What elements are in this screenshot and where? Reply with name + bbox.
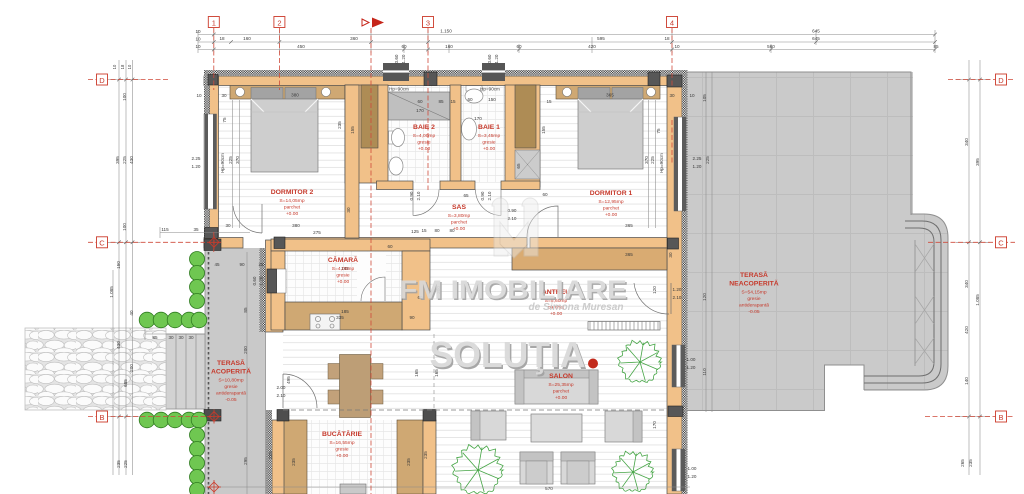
- svg-text:150: 150: [116, 261, 121, 269]
- svg-text:100: 100: [122, 93, 127, 101]
- svg-text:365: 365: [606, 93, 614, 98]
- svg-text:370: 370: [235, 156, 240, 164]
- svg-text:155: 155: [541, 126, 546, 134]
- svg-text:560: 560: [767, 44, 775, 49]
- svg-text:2: 2: [277, 18, 281, 27]
- svg-text:65: 65: [463, 193, 469, 198]
- svg-text:1.20: 1.20: [494, 54, 499, 63]
- svg-text:160: 160: [445, 44, 453, 49]
- svg-text:S=25,35mp: S=25,35mp: [548, 382, 573, 388]
- svg-text:160: 160: [243, 36, 251, 41]
- svg-text:30: 30: [225, 223, 231, 228]
- svg-text:365: 365: [625, 252, 633, 257]
- svg-text:340: 340: [964, 138, 969, 146]
- svg-text:120: 120: [652, 286, 657, 294]
- svg-text:0.60: 0.60: [252, 276, 257, 285]
- svg-text:+0.00: +0.00: [418, 146, 431, 152]
- svg-text:10: 10: [127, 64, 132, 69]
- svg-text:0.60: 0.60: [394, 54, 399, 63]
- svg-text:40: 40: [129, 310, 134, 316]
- svg-text:75: 75: [222, 117, 227, 123]
- svg-text:S=12,95mp: S=12,95mp: [598, 199, 623, 205]
- svg-text:380: 380: [291, 93, 299, 98]
- svg-text:60: 60: [542, 192, 548, 197]
- svg-text:365: 365: [625, 223, 633, 228]
- svg-text:335: 335: [336, 315, 344, 320]
- svg-text:C: C: [99, 239, 105, 248]
- svg-text:120: 120: [702, 293, 707, 301]
- svg-text:2.10: 2.10: [416, 191, 421, 200]
- svg-text:420: 420: [588, 44, 596, 49]
- svg-text:200: 200: [129, 364, 134, 372]
- svg-text:360: 360: [350, 36, 358, 41]
- svg-text:430: 430: [129, 156, 134, 164]
- svg-text:S=16,55mp: S=16,55mp: [329, 440, 354, 446]
- svg-text:0.90: 0.90: [409, 191, 414, 200]
- svg-text:1.00: 1.00: [688, 466, 697, 471]
- svg-text:110: 110: [702, 368, 707, 376]
- svg-text:gresie: gresie: [417, 140, 431, 146]
- svg-text:225: 225: [123, 460, 128, 468]
- svg-text:D: D: [99, 76, 105, 85]
- svg-text:10: 10: [195, 29, 201, 34]
- svg-text:170: 170: [474, 116, 482, 121]
- svg-text:2.25: 2.25: [192, 156, 201, 161]
- svg-text:90: 90: [409, 315, 415, 320]
- svg-text:parchet: parchet: [284, 205, 301, 211]
- svg-text:NEACOPERITĂ: NEACOPERITĂ: [729, 279, 779, 288]
- svg-text:C: C: [998, 239, 1004, 248]
- svg-text:30: 30: [668, 252, 673, 258]
- svg-text:60: 60: [417, 99, 423, 104]
- svg-text:100: 100: [122, 223, 127, 231]
- svg-text:170: 170: [652, 421, 657, 429]
- svg-text:185: 185: [341, 309, 349, 314]
- svg-text:gresie: gresie: [747, 296, 761, 302]
- svg-text:S=4,00mp: S=4,00mp: [413, 133, 436, 139]
- svg-text:1.150: 1.150: [440, 29, 452, 34]
- svg-text:parchet: parchet: [603, 206, 620, 212]
- svg-text:0.90: 0.90: [480, 191, 485, 200]
- svg-text:1.20: 1.20: [192, 164, 201, 169]
- svg-text:gresie: gresie: [482, 140, 496, 146]
- svg-text:1.20: 1.20: [687, 365, 696, 370]
- svg-text:80: 80: [434, 228, 440, 233]
- svg-text:10: 10: [112, 64, 117, 69]
- svg-text:150: 150: [488, 97, 496, 102]
- svg-text:0.60: 0.60: [487, 54, 492, 63]
- svg-text:+0.00: +0.00: [605, 212, 618, 218]
- svg-text:BUCĂTĂRIE: BUCĂTĂRIE: [322, 429, 362, 438]
- svg-text:395: 395: [975, 158, 980, 166]
- svg-text:ACOPERITĂ: ACOPERITĂ: [211, 367, 251, 376]
- svg-text:30: 30: [168, 335, 174, 340]
- svg-text:30: 30: [221, 93, 227, 98]
- svg-text:gresie: gresie: [335, 447, 349, 453]
- svg-text:B: B: [998, 413, 1003, 422]
- svg-text:1.085: 1.085: [975, 294, 980, 306]
- svg-text:90: 90: [239, 262, 245, 267]
- svg-text:85: 85: [152, 335, 158, 340]
- svg-text:380: 380: [292, 223, 300, 228]
- svg-text:2.00: 2.00: [277, 385, 286, 390]
- svg-text:340: 340: [964, 280, 969, 288]
- svg-text:225: 225: [228, 156, 233, 164]
- svg-text:595: 595: [597, 36, 605, 41]
- svg-text:10: 10: [196, 93, 202, 98]
- svg-text:2.10: 2.10: [277, 393, 286, 398]
- svg-text:+0.00: +0.00: [555, 395, 568, 401]
- svg-text:570: 570: [545, 486, 553, 491]
- svg-text:DORMITOR 2: DORMITOR 2: [271, 189, 314, 196]
- svg-text:+0.00: +0.00: [483, 146, 496, 152]
- svg-text:60: 60: [467, 97, 473, 102]
- svg-text:1.20: 1.20: [688, 474, 697, 479]
- svg-text:Hp=90cm: Hp=90cm: [389, 87, 409, 92]
- svg-text:1: 1: [212, 18, 216, 27]
- svg-text:60: 60: [387, 244, 393, 249]
- svg-text:235: 235: [406, 458, 411, 466]
- svg-text:370: 370: [644, 156, 649, 164]
- svg-text:2.10: 2.10: [673, 295, 682, 300]
- svg-text:parchet: parchet: [451, 220, 468, 226]
- svg-text:BAIE 1: BAIE 1: [478, 124, 500, 131]
- svg-text:Hp=90cm: Hp=90cm: [659, 153, 664, 173]
- svg-text:15: 15: [421, 228, 427, 233]
- svg-text:0.90: 0.90: [508, 208, 517, 213]
- svg-text:495: 495: [286, 376, 291, 384]
- svg-text:1.20: 1.20: [693, 164, 702, 169]
- svg-text:30: 30: [178, 335, 184, 340]
- svg-text:+0.00: +0.00: [286, 211, 299, 217]
- svg-text:CĂMARĂ: CĂMARĂ: [328, 255, 358, 264]
- svg-text:TERASĂ: TERASĂ: [740, 270, 768, 279]
- svg-text:gresie: gresie: [224, 384, 238, 390]
- svg-text:15: 15: [546, 99, 552, 104]
- svg-text:DORMITOR 1: DORMITOR 1: [590, 190, 633, 197]
- svg-text:TERASĂ: TERASĂ: [217, 358, 245, 367]
- svg-text:225: 225: [268, 451, 273, 459]
- svg-text:3: 3: [426, 18, 430, 27]
- svg-text:75: 75: [656, 128, 661, 134]
- svg-text:FM IMOBILIARE: FM IMOBILIARE: [399, 275, 627, 305]
- svg-text:155: 155: [350, 126, 355, 134]
- svg-text:2.25: 2.25: [693, 156, 702, 161]
- svg-text:225: 225: [122, 156, 127, 164]
- svg-text:45: 45: [214, 262, 220, 267]
- svg-text:SAS: SAS: [452, 204, 466, 211]
- svg-text:SOLUŢIA: SOLUŢIA: [430, 334, 586, 375]
- svg-text:125: 125: [411, 229, 419, 234]
- svg-text:25: 25: [258, 262, 264, 267]
- svg-text:18: 18: [664, 36, 670, 41]
- svg-text:10: 10: [674, 44, 680, 49]
- svg-text:275: 275: [313, 230, 321, 235]
- svg-text:430: 430: [116, 341, 121, 349]
- svg-text:Hp=90cm: Hp=90cm: [480, 87, 500, 92]
- svg-text:235: 235: [423, 451, 428, 459]
- svg-text:450: 450: [297, 44, 305, 49]
- svg-text:85: 85: [243, 307, 248, 313]
- svg-text:S=10,80mp: S=10,80mp: [218, 378, 243, 384]
- svg-text:30: 30: [669, 93, 675, 98]
- svg-text:60: 60: [516, 44, 522, 49]
- svg-text:15: 15: [450, 99, 456, 104]
- svg-text:BAIE 2: BAIE 2: [413, 124, 435, 131]
- svg-text:S=4,00mp: S=4,00mp: [332, 266, 355, 272]
- svg-text:Hp=90cm: Hp=90cm: [220, 153, 225, 173]
- svg-text:S=3,80mp: S=3,80mp: [448, 213, 471, 219]
- svg-text:65: 65: [516, 163, 521, 169]
- svg-text:18: 18: [120, 64, 125, 69]
- svg-text:60: 60: [401, 44, 407, 49]
- svg-text:225: 225: [705, 156, 710, 164]
- svg-text:S=14,05mp: S=14,05mp: [279, 198, 304, 204]
- svg-text:235: 235: [337, 121, 342, 129]
- svg-text:115: 115: [161, 227, 169, 232]
- svg-text:+0.00: +0.00: [337, 279, 350, 285]
- svg-text:140: 140: [964, 377, 969, 385]
- svg-text:-0.05: -0.05: [225, 397, 236, 403]
- svg-text:165: 165: [414, 369, 419, 377]
- svg-text:10: 10: [195, 44, 201, 49]
- svg-text:10: 10: [195, 37, 201, 42]
- svg-text:gresie: gresie: [336, 273, 350, 279]
- svg-text:85: 85: [438, 99, 444, 104]
- svg-text:B: B: [99, 413, 104, 422]
- svg-text:2.10: 2.10: [508, 216, 517, 221]
- svg-text:235: 235: [968, 459, 973, 467]
- svg-text:antiderapantă: antiderapantă: [216, 391, 246, 397]
- svg-text:420: 420: [964, 326, 969, 334]
- svg-text:225: 225: [650, 156, 655, 164]
- svg-text:30: 30: [188, 335, 194, 340]
- svg-text:de Simona Muresan: de Simona Muresan: [529, 302, 624, 313]
- svg-text:235: 235: [116, 460, 121, 468]
- svg-text:parchet: parchet: [553, 389, 570, 395]
- svg-text:1.20: 1.20: [259, 276, 264, 285]
- svg-text:685: 685: [123, 379, 128, 387]
- svg-text:-0.05: -0.05: [748, 309, 759, 315]
- svg-text:+0.00: +0.00: [336, 453, 349, 459]
- svg-text:105: 105: [702, 94, 707, 102]
- svg-text:200: 200: [243, 346, 248, 354]
- svg-text:D: D: [998, 76, 1004, 85]
- svg-text:18: 18: [219, 36, 225, 41]
- svg-text:1.00: 1.00: [687, 357, 696, 362]
- svg-text:4: 4: [670, 18, 674, 27]
- svg-text:235: 235: [291, 458, 296, 466]
- svg-text:35: 35: [193, 227, 199, 232]
- svg-text:85: 85: [933, 44, 939, 49]
- svg-text:S=3,45mp: S=3,45mp: [478, 133, 501, 139]
- svg-text:1.085: 1.085: [109, 286, 114, 298]
- svg-text:295: 295: [243, 457, 248, 465]
- svg-text:S=54,15mp: S=54,15mp: [741, 290, 766, 296]
- svg-text:170: 170: [416, 108, 424, 113]
- svg-text:30: 30: [346, 207, 351, 213]
- svg-text:1.20: 1.20: [673, 287, 682, 292]
- svg-text:645: 645: [812, 36, 820, 41]
- svg-text:+0.00: +0.00: [453, 226, 466, 232]
- svg-text:645: 645: [812, 29, 820, 34]
- svg-text:395: 395: [115, 156, 120, 164]
- svg-text:1.20: 1.20: [401, 54, 406, 63]
- svg-text:265: 265: [960, 459, 965, 467]
- svg-text:10: 10: [689, 93, 695, 98]
- svg-text:2.10: 2.10: [487, 191, 492, 200]
- svg-text:antiderapantă: antiderapantă: [739, 303, 769, 309]
